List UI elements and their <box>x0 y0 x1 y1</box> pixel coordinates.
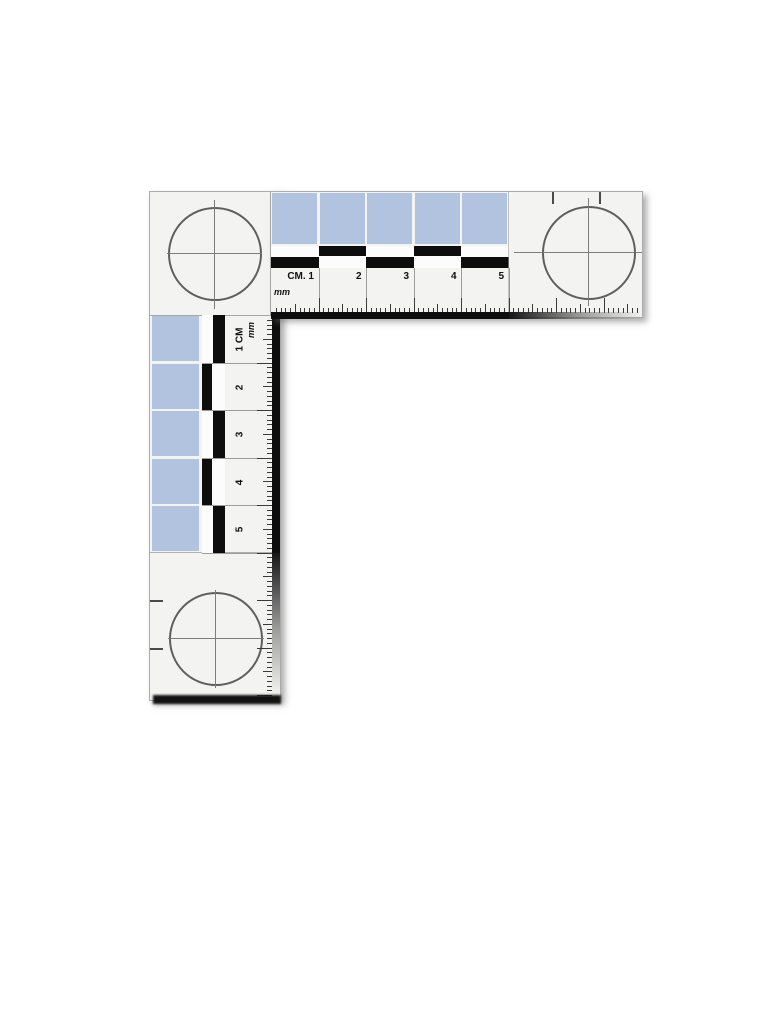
mm-tick <box>263 386 272 387</box>
scale-vertical-arm: 1 CM2345mm <box>149 191 281 701</box>
blue-square <box>320 193 365 244</box>
blue-square <box>152 506 199 551</box>
blue-square <box>152 364 199 409</box>
blue-square <box>367 193 412 244</box>
crosshair-vertical-line <box>215 590 216 688</box>
blue-square <box>415 193 460 244</box>
cm-edge-tick <box>150 600 163 602</box>
cm-label: 2 <box>319 270 362 283</box>
checker-bar-black <box>213 505 225 553</box>
checker-bar-black <box>213 315 225 363</box>
mm-tick <box>257 458 272 459</box>
mm-tick <box>257 600 272 601</box>
cm-cell-divider <box>202 505 258 506</box>
mm-tick <box>263 339 272 340</box>
crosshair-vertical-line <box>588 198 589 306</box>
cm-edge-tick <box>552 192 554 204</box>
blue-square <box>272 193 317 244</box>
blue-square <box>152 316 199 361</box>
checker-bar-black <box>213 410 225 458</box>
cm-label-text: 2 <box>235 384 246 390</box>
cm-edge-tick <box>150 648 163 650</box>
right-block-divider <box>508 192 509 312</box>
scale-horizontal-arm: CM. 12345mm <box>271 191 643 318</box>
fiducial-circle-right <box>542 206 636 300</box>
mm-tick <box>257 648 272 649</box>
blue-square <box>462 193 507 244</box>
crosshair-horizontal-line <box>168 638 264 639</box>
checker-bar-black <box>366 257 414 268</box>
mm-unit-label-text: mm <box>246 322 256 338</box>
mm-tick <box>257 410 272 411</box>
cm-edge-tick <box>599 192 601 204</box>
checker-bar-black <box>202 363 212 411</box>
blue-square <box>152 411 199 456</box>
cm-cell-divider <box>202 363 258 364</box>
black-edge-strip-horizontal <box>271 312 509 319</box>
cm-label: 5 <box>461 270 504 283</box>
checker-bar-black <box>461 257 509 268</box>
black-edge-strip-vertical-fade <box>272 553 280 695</box>
mm-unit-label: mm <box>243 318 259 342</box>
mm-tick <box>263 624 272 625</box>
mm-unit-label: mm <box>274 287 294 298</box>
mm-tick <box>366 298 367 313</box>
checker-bar-black <box>271 257 319 268</box>
mm-tick <box>263 576 272 577</box>
cm-label-text: 3 <box>235 432 246 438</box>
cm-cell-divider <box>202 458 258 459</box>
mm-tick <box>461 298 462 313</box>
cm-label: 3 <box>226 415 254 455</box>
black-edge-strip-horizontal-fade <box>509 312 643 319</box>
mm-tick <box>263 529 272 530</box>
mm-tick <box>319 298 320 313</box>
photo-canvas: 1 CM2345mm CM. 12345mm <box>0 0 768 1024</box>
mm-tick <box>556 298 557 313</box>
mm-tick <box>257 363 272 364</box>
cm-cell-divider <box>202 410 258 411</box>
crosshair-vertical-line <box>214 200 215 309</box>
mm-tick <box>257 553 272 554</box>
checker-bar-black <box>202 458 212 506</box>
mm-tick <box>257 505 272 506</box>
black-edge-strip-vertical <box>272 309 280 553</box>
cm-cell-divider <box>202 553 258 554</box>
crosshair-horizontal-line <box>514 252 642 253</box>
mm-tick <box>604 298 605 313</box>
cm-label-text: 4 <box>235 479 246 485</box>
mm-tick <box>263 671 272 672</box>
mm-tick <box>263 434 272 435</box>
checker-bar-black <box>414 246 462 256</box>
fiducial-circle-bottom <box>169 592 263 686</box>
bottom-edge-black-bar <box>153 695 281 704</box>
cm-label: CM. 1 <box>271 270 314 283</box>
mm-tick <box>414 298 415 313</box>
cm-label: 3 <box>366 270 409 283</box>
cm-label: 5 <box>226 510 254 550</box>
checker-bar-black <box>319 246 367 256</box>
cm-label: 2 <box>226 367 254 407</box>
cm-label-text: 5 <box>235 527 246 533</box>
cm-label: 4 <box>226 462 254 502</box>
mm-tick <box>263 481 272 482</box>
cm-label: 4 <box>414 270 457 283</box>
blue-square <box>152 459 199 504</box>
fiducial-circle-top <box>168 207 262 301</box>
